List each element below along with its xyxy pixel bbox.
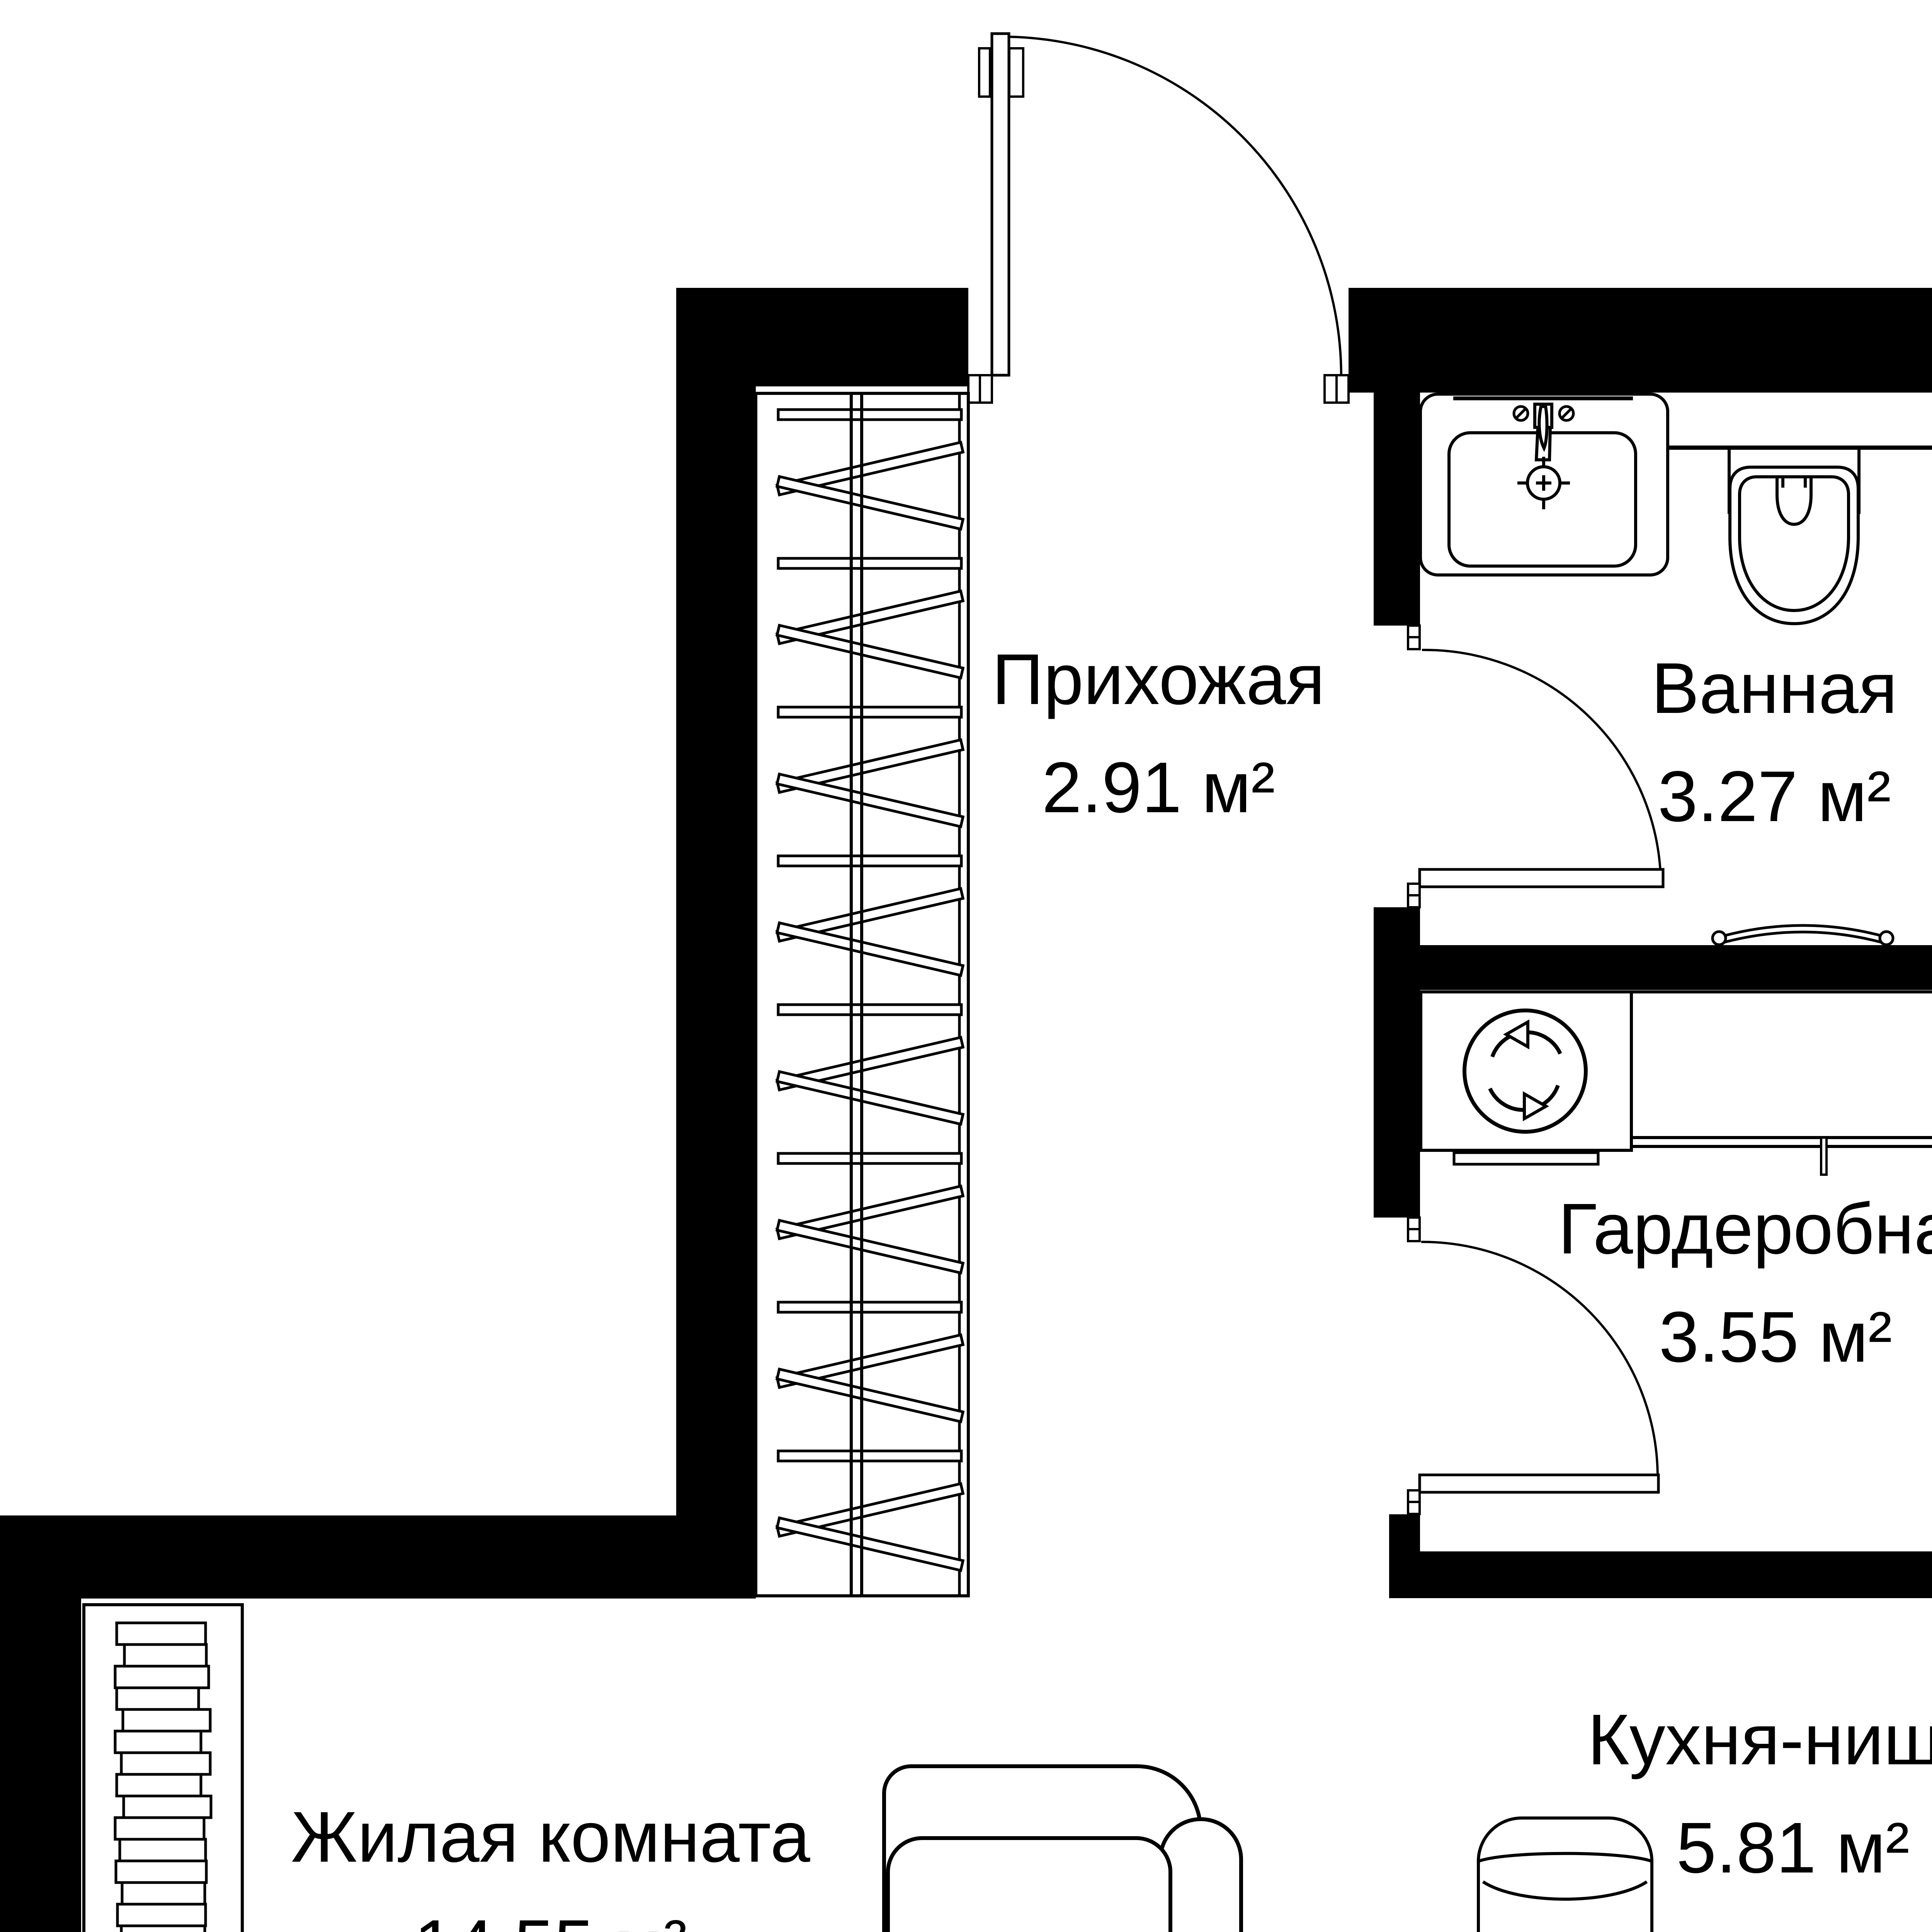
svg-text:Кухня-ниша: Кухня-ниша <box>1587 1700 1932 1780</box>
svg-text:2.91 м²: 2.91 м² <box>1042 748 1275 828</box>
svg-text:5.81 м²: 5.81 м² <box>1676 1808 1910 1888</box>
svg-text:Жилая комната: Жилая комната <box>291 1797 810 1877</box>
svg-text:3.27 м²: 3.27 м² <box>1658 757 1891 837</box>
svg-text:Гардеробная: Гардеробная <box>1558 1189 1932 1269</box>
svg-text:3.55 м²: 3.55 м² <box>1659 1297 1892 1377</box>
svg-text:14.55 м²: 14.55 м² <box>414 1905 687 1932</box>
svg-text:Прихожая: Прихожая <box>992 639 1325 719</box>
svg-text:Ванная: Ванная <box>1651 648 1897 728</box>
